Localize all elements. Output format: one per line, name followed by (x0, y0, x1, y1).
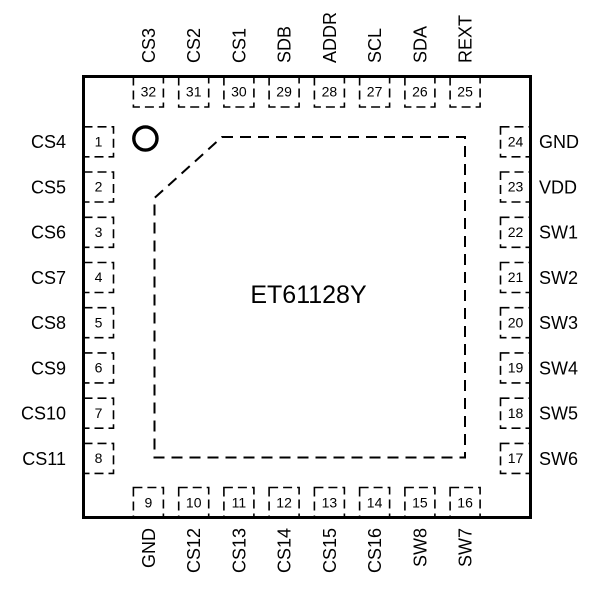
svg-text:GND: GND (139, 528, 159, 568)
svg-text:CS8: CS8 (31, 313, 66, 333)
svg-text:11: 11 (232, 494, 247, 510)
svg-text:ET61128Y: ET61128Y (250, 281, 367, 309)
svg-text:19: 19 (508, 360, 524, 376)
svg-text:SW5: SW5 (539, 404, 578, 424)
svg-text:CS14: CS14 (275, 528, 295, 573)
svg-text:23: 23 (508, 179, 524, 195)
svg-text:SCL: SCL (365, 28, 385, 63)
svg-text:2: 2 (95, 179, 103, 195)
svg-text:SW6: SW6 (539, 449, 578, 469)
svg-text:5: 5 (95, 314, 103, 330)
svg-text:1: 1 (95, 134, 103, 150)
svg-text:27: 27 (367, 83, 383, 99)
svg-text:7: 7 (95, 405, 103, 421)
svg-text:CS11: CS11 (22, 449, 66, 469)
svg-text:13: 13 (322, 494, 338, 510)
svg-text:22: 22 (508, 224, 524, 240)
svg-text:8: 8 (95, 450, 103, 466)
svg-text:VDD: VDD (539, 177, 577, 197)
svg-text:CS4: CS4 (31, 132, 66, 152)
svg-text:CS7: CS7 (31, 268, 66, 288)
svg-text:CS16: CS16 (365, 528, 385, 573)
svg-text:28: 28 (322, 83, 338, 99)
svg-text:GND: GND (539, 132, 579, 152)
svg-text:CS10: CS10 (21, 404, 66, 424)
svg-text:SW1: SW1 (539, 223, 578, 243)
svg-text:9: 9 (145, 494, 153, 510)
svg-text:CS6: CS6 (31, 223, 66, 243)
svg-text:CS12: CS12 (184, 528, 204, 573)
svg-text:CS1: CS1 (229, 28, 249, 63)
svg-text:SW8: SW8 (410, 528, 430, 567)
svg-text:CS15: CS15 (320, 528, 340, 573)
svg-text:SW4: SW4 (539, 358, 578, 378)
svg-text:6: 6 (95, 360, 103, 376)
svg-text:12: 12 (276, 494, 292, 510)
svg-text:31: 31 (186, 83, 202, 99)
svg-text:20: 20 (508, 314, 524, 330)
svg-text:SW2: SW2 (539, 268, 578, 288)
svg-text:SW7: SW7 (456, 528, 476, 567)
svg-text:CS13: CS13 (229, 528, 249, 573)
svg-text:17: 17 (508, 450, 524, 466)
svg-text:24: 24 (508, 134, 524, 150)
svg-text:SDA: SDA (410, 26, 430, 63)
svg-text:CS5: CS5 (31, 177, 66, 197)
svg-text:29: 29 (276, 83, 292, 99)
svg-text:CS3: CS3 (139, 28, 159, 63)
svg-text:4: 4 (95, 269, 103, 285)
svg-text:16: 16 (457, 494, 473, 510)
svg-text:26: 26 (412, 83, 428, 99)
svg-text:18: 18 (508, 405, 524, 421)
svg-text:3: 3 (95, 224, 103, 240)
svg-text:ADDR: ADDR (320, 12, 340, 63)
svg-text:14: 14 (367, 494, 383, 510)
svg-text:CS9: CS9 (31, 358, 66, 378)
svg-text:10: 10 (186, 494, 202, 510)
svg-text:REXT: REXT (456, 15, 476, 63)
svg-text:15: 15 (412, 494, 428, 510)
svg-text:32: 32 (141, 83, 157, 99)
svg-text:SW3: SW3 (539, 313, 578, 333)
svg-text:SDB: SDB (275, 26, 295, 63)
svg-text:25: 25 (457, 83, 473, 99)
svg-text:30: 30 (231, 83, 247, 99)
svg-text:CS2: CS2 (184, 28, 204, 63)
svg-text:21: 21 (508, 269, 524, 285)
